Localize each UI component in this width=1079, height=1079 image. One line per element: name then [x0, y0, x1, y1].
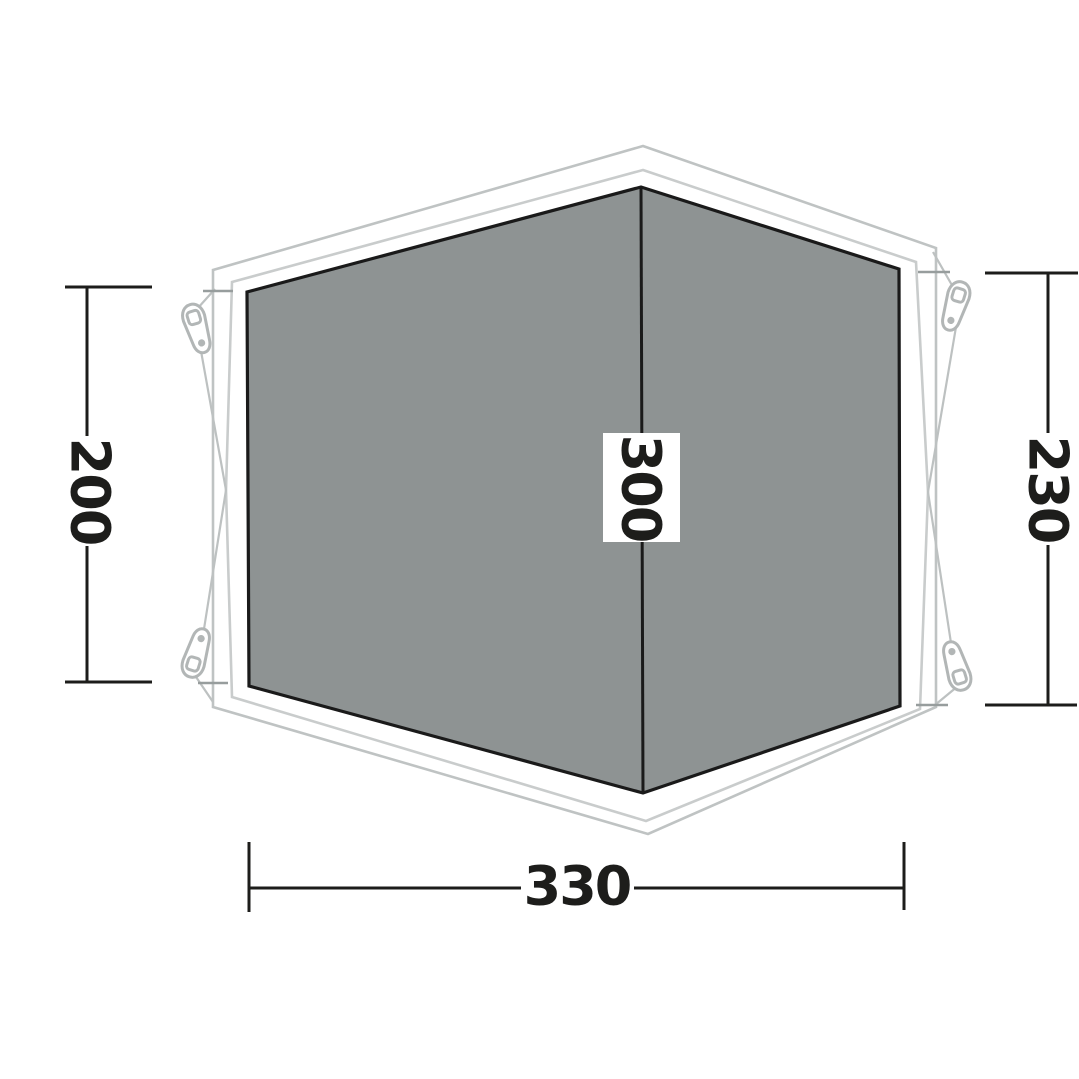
bottom-dimension-label: 330	[524, 855, 631, 918]
center-dimension-label: 300	[610, 435, 673, 542]
left-dimension-label: 200	[59, 438, 122, 545]
dimension-center: 300	[603, 433, 680, 542]
footprint-diagram: 300 200 230 330	[0, 0, 1079, 1079]
groundsheet-panel	[247, 187, 900, 793]
peg-tab-hole	[186, 310, 201, 326]
peg-tab-hole	[952, 669, 967, 685]
peg-tab-hole	[186, 656, 201, 672]
peg-tab-hole	[951, 287, 966, 303]
groundsheet	[247, 187, 900, 793]
right-dimension-label: 230	[1017, 436, 1079, 543]
